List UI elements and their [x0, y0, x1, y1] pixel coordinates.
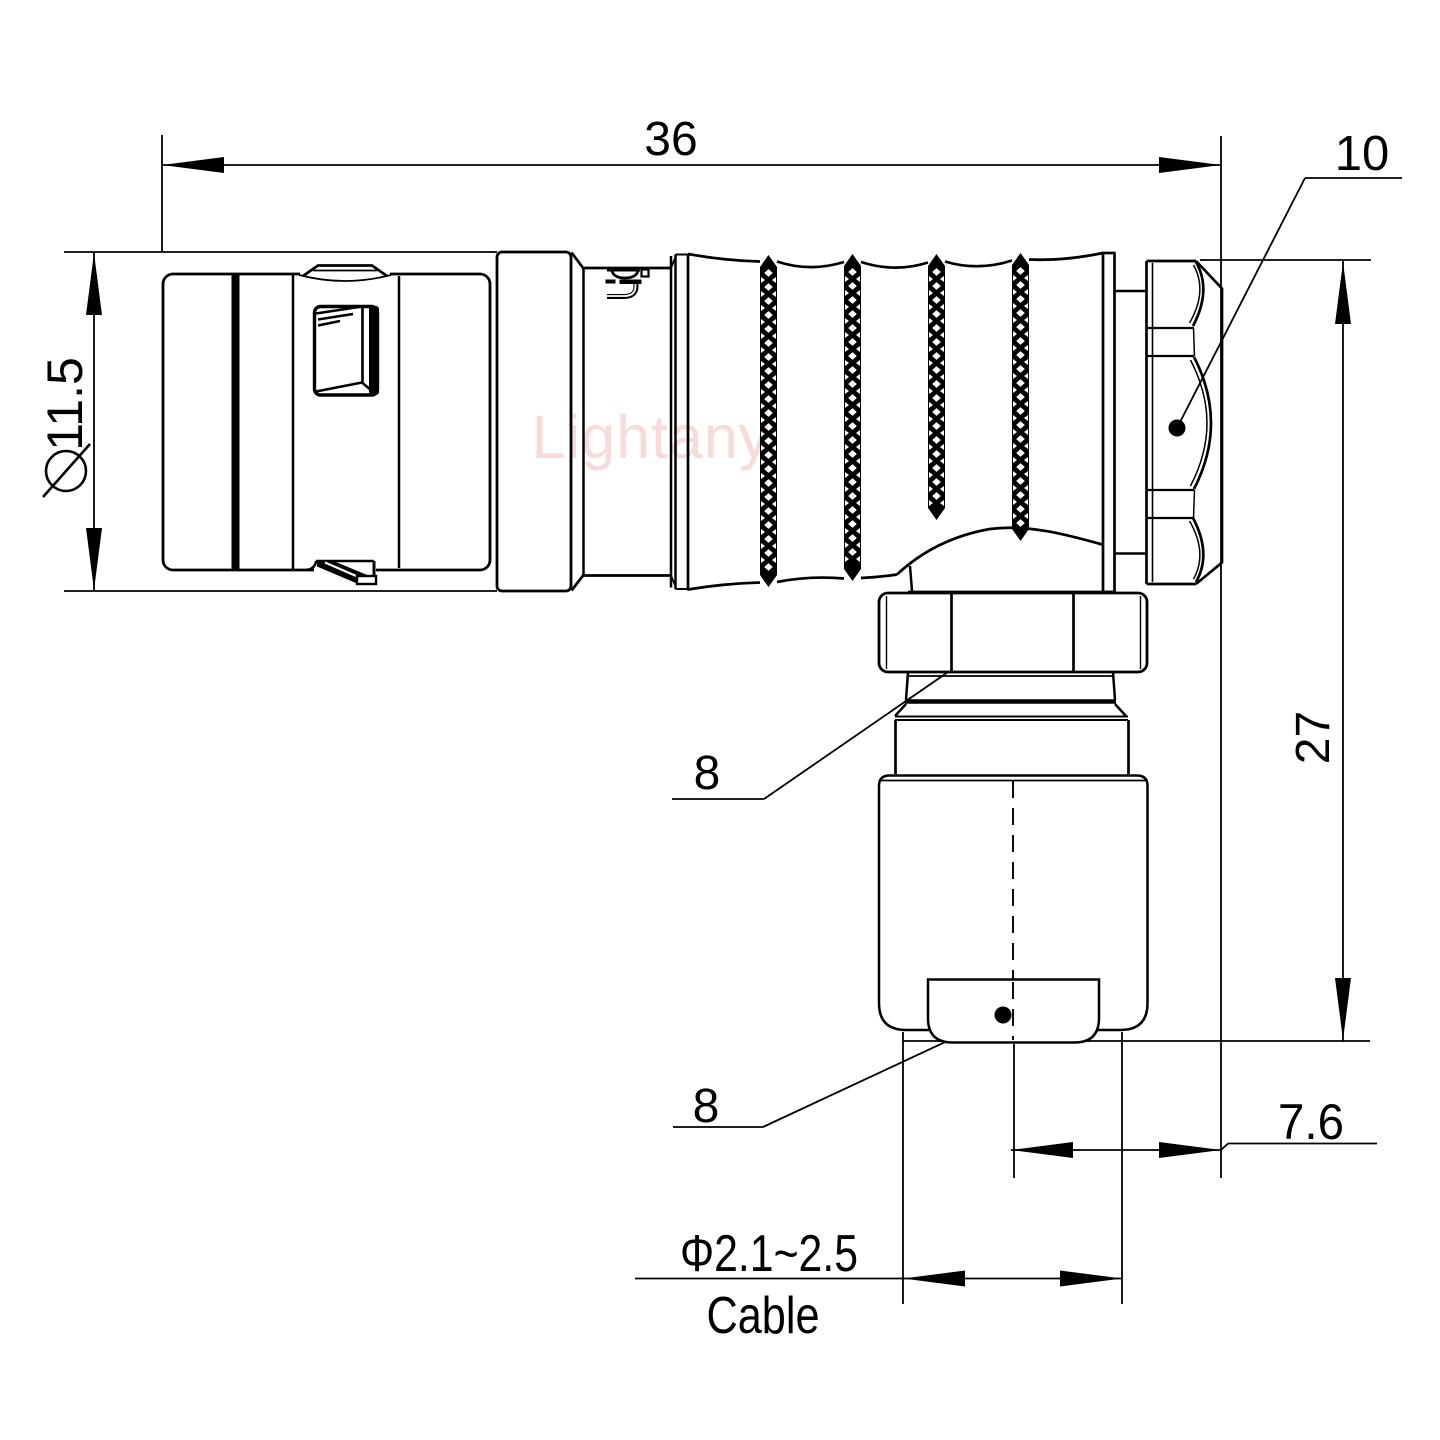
svg-text:11.5: 11.5	[37, 357, 93, 451]
svg-text:36: 36	[644, 113, 697, 166]
svg-text:8: 8	[693, 1080, 720, 1133]
svg-text:Φ2.1~2.5: Φ2.1~2.5	[680, 1225, 858, 1283]
svg-text:10: 10	[1335, 127, 1390, 181]
svg-text:8: 8	[694, 747, 721, 800]
svg-text:Cable: Cable	[707, 1287, 820, 1345]
svg-text:7.6: 7.6	[1278, 1094, 1344, 1150]
svg-text:27: 27	[1287, 711, 1340, 764]
svg-text:Lightany: Lightany	[532, 403, 771, 471]
